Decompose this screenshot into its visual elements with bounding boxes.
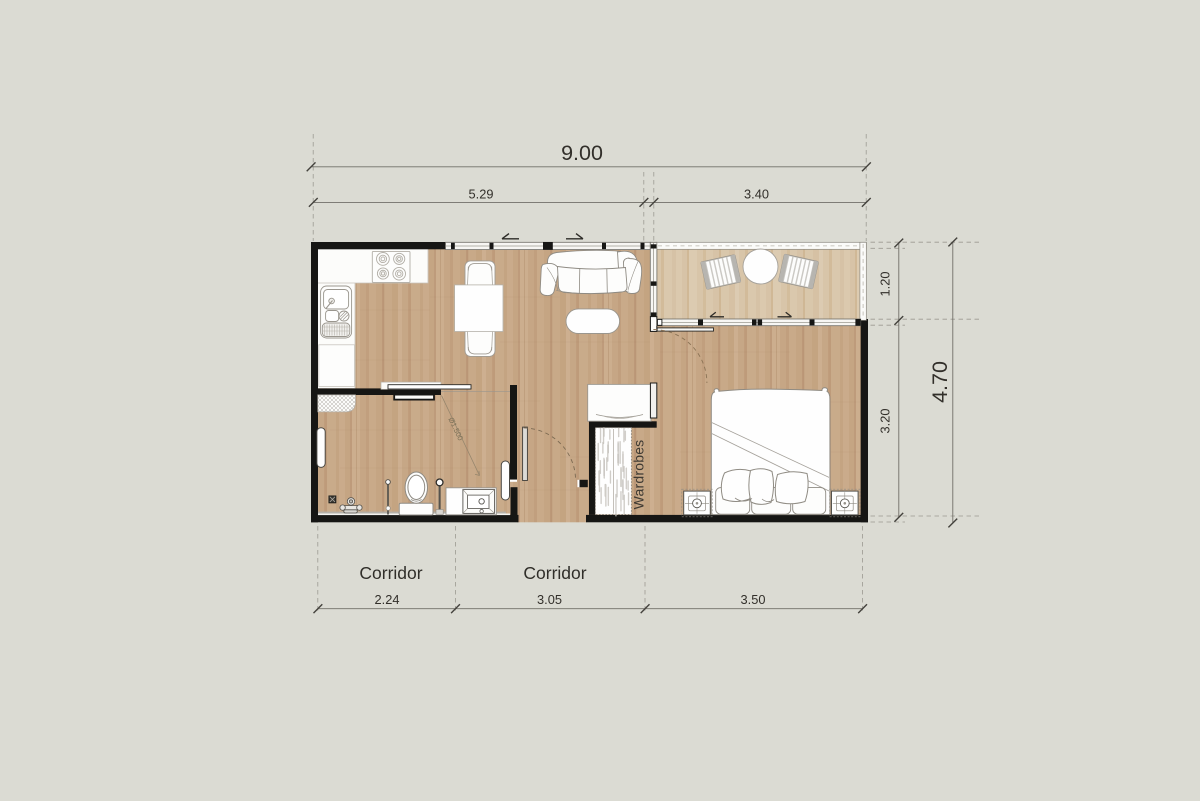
svg-text:Corridor: Corridor (359, 563, 422, 583)
svg-text:3.20: 3.20 (878, 409, 893, 434)
svg-text:3.05: 3.05 (537, 592, 562, 607)
svg-text:5.29: 5.29 (469, 186, 494, 201)
svg-text:Wardrobes: Wardrobes (631, 440, 647, 510)
svg-text:2.24: 2.24 (375, 592, 400, 607)
svg-text:4.70: 4.70 (928, 361, 952, 403)
svg-text:9.00: 9.00 (561, 141, 603, 165)
svg-text:1.20: 1.20 (878, 272, 893, 297)
svg-text:Corridor: Corridor (523, 563, 586, 583)
svg-text:3.50: 3.50 (741, 592, 766, 607)
svg-text:3.40: 3.40 (744, 186, 769, 201)
